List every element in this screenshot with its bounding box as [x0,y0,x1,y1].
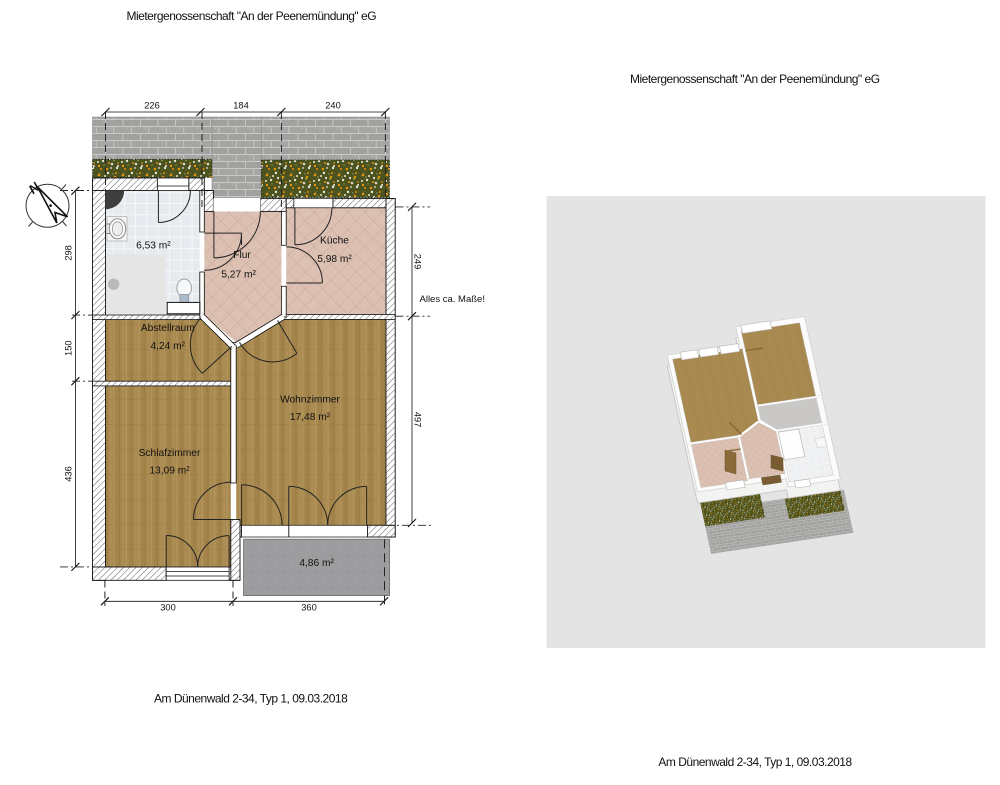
svg-text:Schlafzimmer: Schlafzimmer [139,448,201,459]
svg-text:Alles ca. Maße!: Alles ca. Maße! [420,294,485,305]
svg-text:4,86 m²: 4,86 m² [299,558,334,569]
svg-text:Mietergenossenschaft "An der P: Mietergenossenschaft "An der Peenemündun… [127,9,377,23]
svg-text:240: 240 [325,101,341,111]
svg-text:Küche: Küche [320,236,349,247]
svg-text:436: 436 [64,466,74,482]
svg-text:6,53 m²: 6,53 m² [136,241,171,252]
svg-text:298: 298 [64,245,74,261]
svg-text:497: 497 [413,412,423,428]
svg-text:300: 300 [160,603,176,613]
svg-text:360: 360 [301,603,317,613]
svg-text:5,27 m²: 5,27 m² [221,270,256,281]
svg-text:N: N [26,179,43,197]
svg-text:13,09 m²: 13,09 m² [149,466,190,477]
svg-text:5,98 m²: 5,98 m² [317,254,352,265]
svg-text:Mietergenossenschaft "An der P: Mietergenossenschaft "An der Peenemündun… [630,72,880,86]
svg-text:184: 184 [233,101,249,111]
svg-text:Abstellraum: Abstellraum [141,323,195,334]
svg-text:Am Dünenwald 2-34, Typ 1, 09.0: Am Dünenwald 2-34, Typ 1, 09.03.2018 [658,755,852,769]
svg-text:226: 226 [144,101,160,111]
svg-text:17,48 m²: 17,48 m² [290,412,331,423]
svg-text:Wohnzimmer: Wohnzimmer [280,395,340,406]
svg-text:4,24 m²: 4,24 m² [151,341,186,352]
svg-text:Flur: Flur [233,250,251,261]
svg-text:Am Dünenwald 2-34, Typ 1, 09.0: Am Dünenwald 2-34, Typ 1, 09.03.2018 [154,692,348,706]
svg-text:150: 150 [64,340,74,356]
svg-text:249: 249 [413,254,423,270]
